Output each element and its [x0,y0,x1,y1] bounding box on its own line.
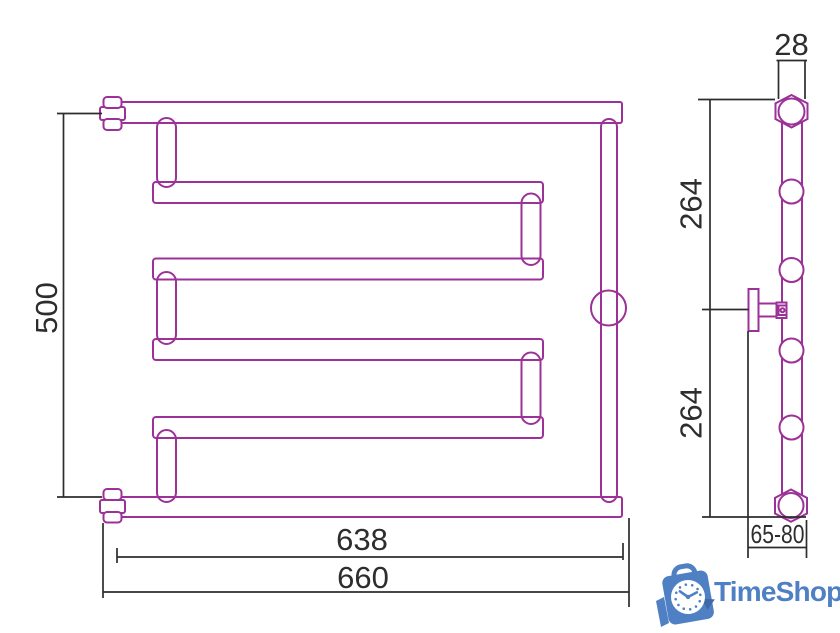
right-riser-pipe [601,119,617,502]
serpentine-bar-2 [153,259,543,280]
brand-logo: TimeShop [656,562,840,627]
top-pipe [117,102,622,123]
side-hex-bottom-bore [779,493,804,518]
link-right-2 [522,353,541,425]
serpentine-links [157,118,541,502]
label-500: 500 [29,282,64,334]
link-right-1 [522,194,541,266]
label-28: 28 [774,27,808,62]
hex-nut-bottom-left [100,489,125,523]
front-view [100,97,626,523]
label-638: 638 [336,522,388,557]
hex-nut-top-left [100,97,125,130]
riser-ball-union [591,291,626,326]
side-bar-end-1 [780,180,804,204]
towel-rail-drawing: 500 638 660 28 264 264 65-80 [0,0,840,633]
link-left-1 [157,118,176,187]
shopping-bag-clock-icon [660,562,718,626]
label-65-80: 65-80 [751,519,805,549]
side-bar-end-3 [780,339,804,363]
side-hex-top-bore [779,99,805,125]
bottom-pipe [117,497,622,517]
link-left-3 [157,430,176,502]
serpentine-bar-3 [153,339,543,360]
side-bar-end-2 [780,258,804,282]
label-660: 660 [337,560,389,595]
technical-drawing-page: 500 638 660 28 264 264 65-80 [0,0,840,633]
brand-name: TimeShop [714,576,840,607]
link-left-2 [157,272,176,344]
side-bar-end-4 [780,416,804,440]
dim-28 [777,61,808,100]
label-264-lower: 264 [674,387,709,439]
bracket-plate [749,289,759,331]
bracket-arm [759,304,777,317]
label-264-upper: 264 [674,178,709,230]
dim-264-upper [698,100,775,310]
dimensions [57,61,807,608]
wall-bracket [749,289,787,331]
serpentine-bar-1 [153,182,543,203]
side-view [749,95,808,522]
serpentine-bar-4 [153,417,543,438]
